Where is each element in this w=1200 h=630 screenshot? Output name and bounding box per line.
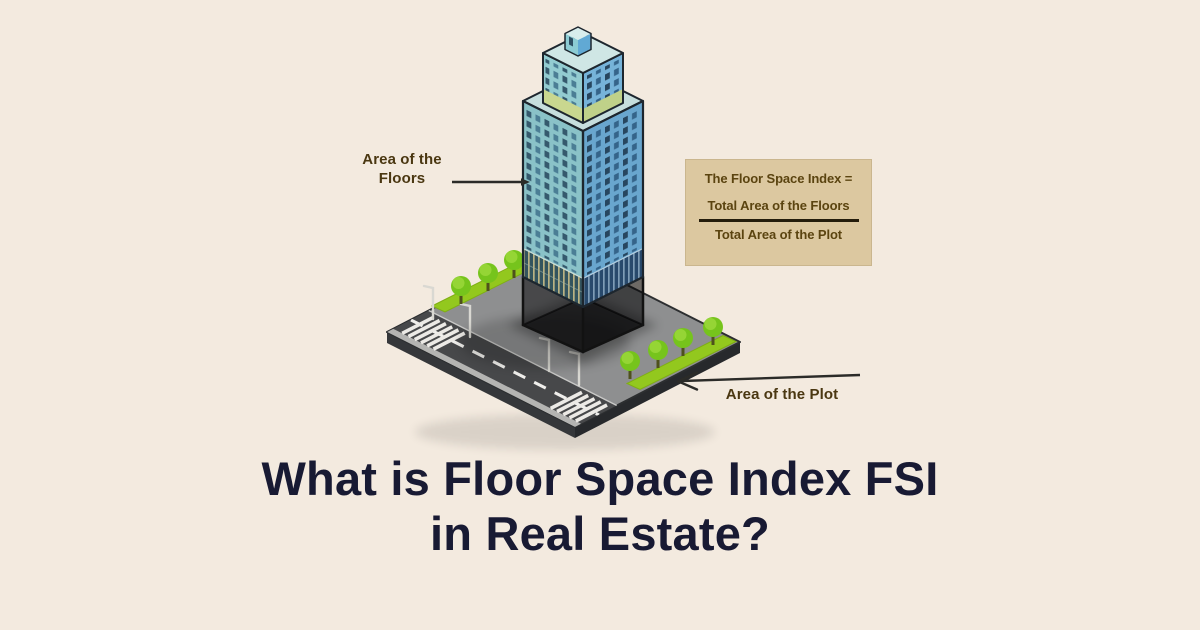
building-left-face [523, 101, 583, 307]
floors-label-line1: Area of the [338, 151, 466, 170]
rooftop-cube [565, 27, 591, 56]
page-title: What is Floor Space Index FSI in Real Es… [0, 451, 1200, 561]
formula-denominator: Total Area of the Plot [715, 227, 842, 242]
formula-numerator: Total Area of the Floors [707, 198, 849, 213]
fsi-formula-box: The Floor Space Index = Total Area of th… [685, 159, 872, 266]
page-title-line1: What is Floor Space Index FSI [0, 451, 1200, 506]
building-right-face [583, 101, 643, 307]
formula-heading: The Floor Space Index = [705, 171, 853, 186]
skyscraper-icon [523, 27, 643, 307]
plot-area-label: Area of the Plot [698, 386, 866, 405]
fraction-bar [699, 219, 859, 222]
floors-area-label: Area of the Floors [338, 151, 466, 189]
fsi-infographic: Area of the Floors Area of the Plot The … [0, 0, 1200, 630]
floors-label-line2: Floors [338, 170, 466, 189]
page-title-line2: in Real Estate? [0, 506, 1200, 561]
